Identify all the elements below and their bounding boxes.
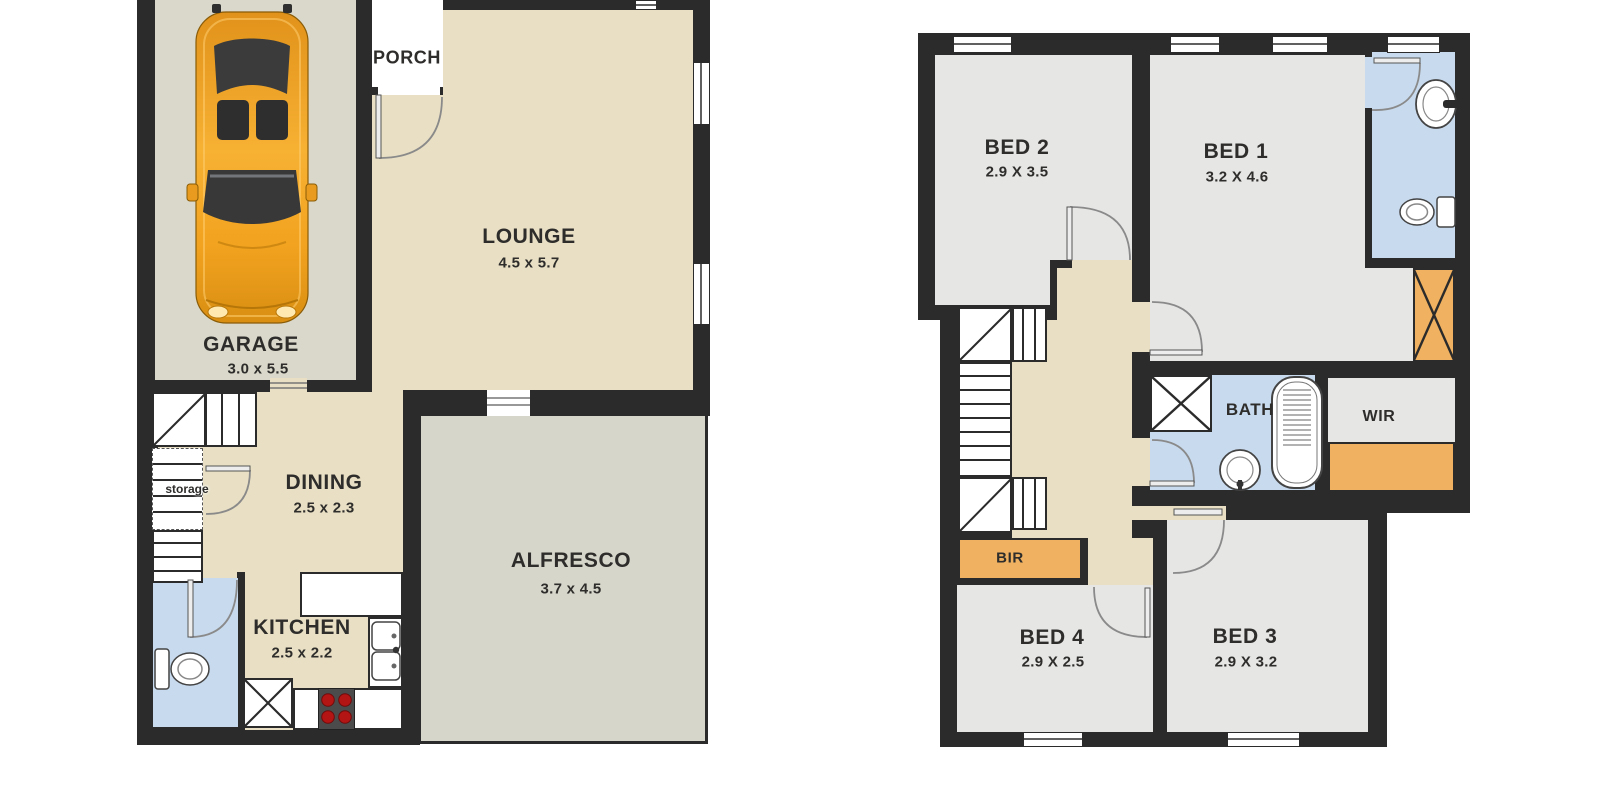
- linen-cupboard: [1150, 375, 1212, 432]
- label-bed1: BED 1: [1204, 140, 1269, 164]
- label-bed4: BED 4: [1020, 626, 1085, 650]
- window: [1387, 36, 1440, 53]
- label-alfresco: ALFRESCO: [511, 549, 631, 573]
- label-bed4-dims: 2.9 X 2.5: [1022, 654, 1085, 671]
- room-bed2: [935, 260, 1050, 305]
- garage-door-opening: [270, 378, 307, 392]
- stairs-treads: [205, 392, 257, 447]
- label-garage: GARAGE: [203, 333, 299, 357]
- ensuite-door-opening: [1365, 57, 1372, 108]
- label-dining: DINING: [285, 471, 362, 495]
- room-lounge-entry: [372, 95, 443, 390]
- passage-lounge-dining: [372, 378, 403, 392]
- window: [693, 62, 710, 125]
- window: [953, 36, 1012, 53]
- stairs-landing: [958, 307, 1012, 362]
- label-kitchen-dims: 2.5 x 2.2: [271, 645, 332, 662]
- hall-landing: [1057, 268, 1132, 320]
- stairs-landing: [152, 392, 206, 447]
- window: [1227, 732, 1300, 747]
- stairs-run: [958, 362, 1012, 477]
- label-bed1-dims: 3.2 X 4.6: [1206, 169, 1269, 186]
- pantry: [243, 678, 293, 728]
- front-door-opening: [378, 87, 440, 95]
- alfresco-left-wall: [403, 390, 420, 744]
- room-porch: [372, 0, 443, 87]
- alfresco-top-wall: [403, 390, 710, 416]
- stairs-lower: [152, 530, 203, 583]
- room-ensuite: [1372, 52, 1455, 258]
- bed1-robe: [1413, 268, 1455, 362]
- label-bed2-dims: 2.9 X 3.5: [986, 164, 1049, 181]
- room-lounge: [443, 10, 693, 390]
- stairs-landing: [958, 477, 1012, 533]
- bath-door-opening: [1132, 438, 1150, 486]
- stairs-treads: [1012, 477, 1047, 530]
- label-lounge: LOUNGE: [482, 225, 575, 249]
- kitchen-bench-right: [368, 617, 403, 688]
- room-bed1: [1150, 268, 1413, 361]
- window: [635, 0, 657, 10]
- bed1-door-opening: [1132, 302, 1150, 352]
- alfresco-slider-opening: [487, 390, 530, 416]
- label-storage: storage: [165, 482, 208, 496]
- window: [1272, 36, 1328, 53]
- stove-icon: [318, 688, 355, 730]
- room-wc: [153, 578, 238, 727]
- bed4-door-opening: [1092, 570, 1148, 585]
- stairs-treads: [1012, 307, 1047, 362]
- label-bed2: BED 2: [985, 136, 1050, 160]
- room-garage: [155, 0, 356, 380]
- window: [1170, 36, 1220, 53]
- label-alfresco-dims: 3.7 x 4.5: [540, 581, 601, 598]
- label-porch: PORCH: [373, 48, 441, 69]
- bed2-door-opening: [1072, 260, 1132, 268]
- kitchen-bench-top: [300, 572, 403, 617]
- hall-corridor: [1132, 506, 1226, 520]
- label-bed3-dims: 2.9 X 3.2: [1215, 654, 1278, 671]
- label-lounge-dims: 4.5 x 5.7: [498, 255, 559, 272]
- floor-plan: GARAGE 3.0 x 5.5 PORCH LOUNGE 4.5 x 5.7 …: [0, 0, 1600, 800]
- window: [1023, 732, 1083, 747]
- label-bir: BIR: [996, 550, 1024, 567]
- label-bath: BATH: [1226, 400, 1274, 420]
- window: [693, 263, 710, 325]
- label-dining-dims: 2.5 x 2.3: [293, 500, 354, 517]
- label-wir: WIR: [1363, 408, 1396, 426]
- label-kitchen: KITCHEN: [253, 616, 351, 640]
- label-bed3: BED 3: [1213, 625, 1278, 649]
- label-garage-dims: 3.0 x 5.5: [227, 361, 288, 378]
- wir-robe: [1328, 442, 1455, 492]
